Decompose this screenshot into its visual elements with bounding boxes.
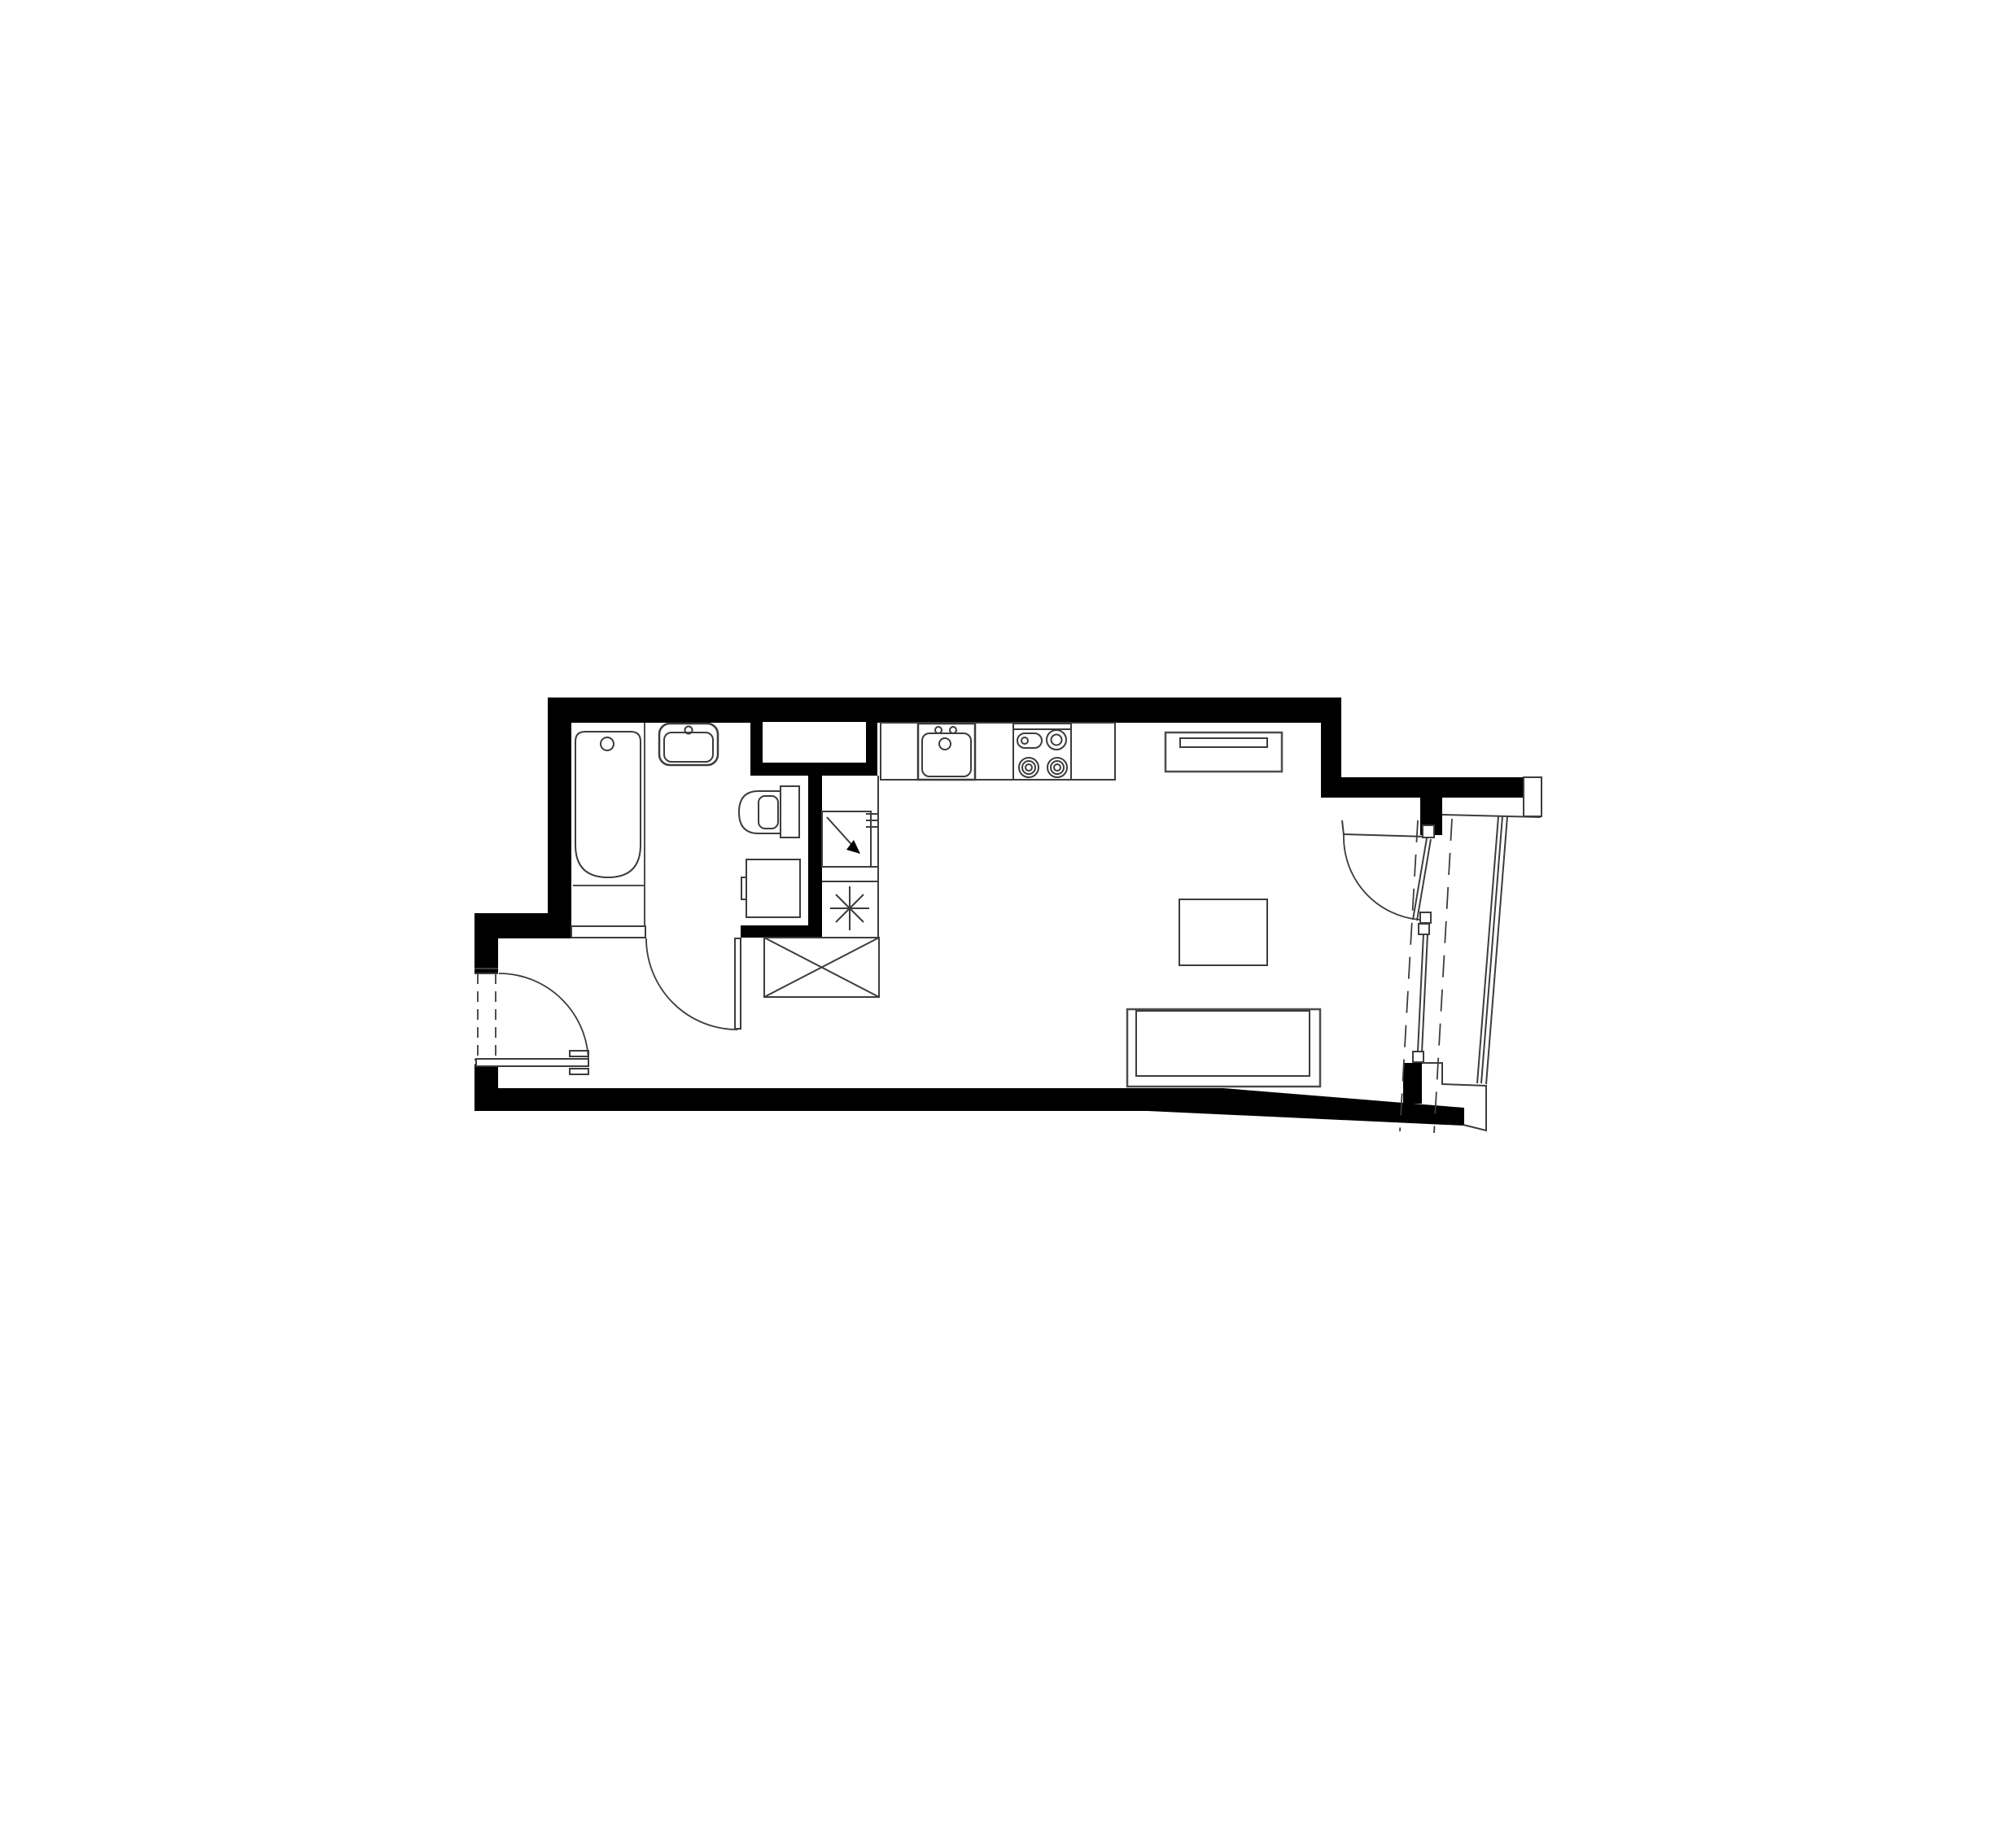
- entry-door-handle-bottom: [570, 1069, 588, 1074]
- wall-bath-south-thick: [741, 925, 822, 938]
- bed-outer: [1127, 1009, 1320, 1087]
- wall-top-right-step: [1321, 723, 1341, 779]
- balcony-door-arc: [1344, 835, 1419, 920]
- toilet-bowl-inner: [759, 796, 778, 829]
- wall-top: [548, 698, 1341, 723]
- wall-bottom: [474, 1088, 1464, 1126]
- floor-plan-page: [0, 0, 2016, 1828]
- wall-right-upper: [1321, 777, 1524, 798]
- kitchen-sink-bowl: [922, 733, 971, 776]
- kitchen-counter: [881, 723, 1115, 780]
- bath-south-thin-wall: [571, 926, 645, 938]
- bathtub: [575, 732, 641, 877]
- wall-window-pier-bottom: [1403, 1063, 1422, 1104]
- bath-door-arc: [646, 938, 737, 1030]
- washing-machine-handle: [741, 877, 746, 899]
- balcony-door-top-line: [1343, 834, 1427, 837]
- window-mullion-bottom: [1413, 1052, 1423, 1062]
- kitchen-sink-tap-2: [950, 727, 956, 733]
- bathtub-faucet: [601, 737, 614, 750]
- basin-inner: [664, 733, 713, 762]
- burner-tr-inner: [1052, 735, 1062, 746]
- wall-entry-step: [474, 913, 571, 938]
- balcony-outer-line-2: [1481, 816, 1502, 1083]
- bed-inner: [1136, 1011, 1310, 1076]
- glazing-dashed-line-2: [1434, 819, 1452, 1133]
- balcony-notch: [1524, 777, 1542, 816]
- entry-door-leaf: [476, 1059, 588, 1066]
- burner-bl-inner: [1025, 764, 1032, 771]
- burner-tr-outer: [1047, 730, 1066, 750]
- shaft-inner: [763, 722, 866, 763]
- entry-door-arc: [499, 973, 588, 1063]
- basin-outer: [659, 724, 718, 765]
- washing-machine: [746, 859, 800, 917]
- burner-br-mid: [1051, 761, 1064, 774]
- cabinet-inner: [1180, 738, 1267, 747]
- burner-bl-mid: [1022, 761, 1035, 774]
- table: [1179, 899, 1267, 965]
- window-mullion-top: [1423, 825, 1434, 837]
- balcony-outer-line-1: [1477, 816, 1498, 1083]
- burner-br-inner: [1054, 764, 1060, 771]
- floor-plan-svg: [0, 0, 2016, 1828]
- wall-duct-vertical: [808, 776, 822, 925]
- toilet-tank: [781, 786, 799, 837]
- balcony-outer-line-3: [1486, 816, 1507, 1084]
- burner-pill-dot: [1021, 737, 1028, 744]
- entry-door-handle-top: [570, 1051, 588, 1056]
- kitchen-sink-drain: [939, 738, 951, 750]
- kitchen-sink-unit: [918, 724, 975, 780]
- window-mullion-mid-2: [1419, 924, 1429, 934]
- bath-door-leaf: [735, 938, 741, 1029]
- wall-left-below-door: [474, 1065, 498, 1091]
- kitchen-sink-tap-1: [935, 727, 942, 733]
- balcony-door-jamb-line: [1342, 820, 1344, 835]
- window-mullion-mid-1: [1420, 912, 1431, 923]
- wall-left-upper: [548, 723, 571, 913]
